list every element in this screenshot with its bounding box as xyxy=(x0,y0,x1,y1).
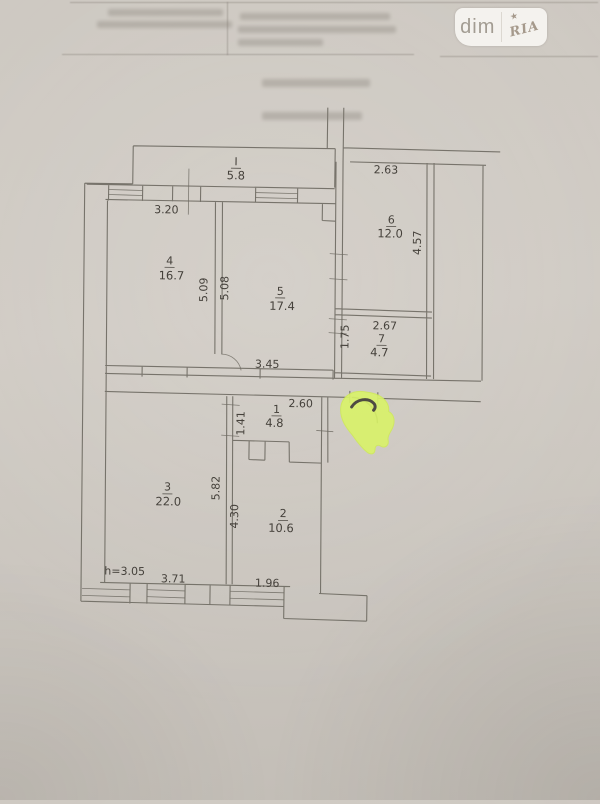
room-3-number: 3 xyxy=(164,480,171,493)
room-4-area: 16.7 xyxy=(159,268,185,282)
blurred-text xyxy=(240,13,390,20)
room-balcony-number: I xyxy=(234,155,237,168)
room-4-number: 4 xyxy=(166,254,173,267)
dim-logo: dim xyxy=(455,16,501,39)
blurred-text xyxy=(97,21,232,28)
plan-walls xyxy=(79,104,501,623)
room-1-number: 1 xyxy=(273,403,280,416)
room-7-area: 4.7 xyxy=(370,345,388,359)
dim-label-4-30: 4.30 xyxy=(228,504,241,529)
dim-label-2-60: 2.60 xyxy=(288,397,313,410)
faint-table-line xyxy=(440,56,598,57)
room-number-underlines xyxy=(161,167,397,522)
dim-label-height: h=3.05 xyxy=(104,564,145,578)
dim-label-2-63: 2.63 xyxy=(374,163,399,176)
faint-table-line xyxy=(70,2,598,3)
dim-label-1-41: 1.41 xyxy=(234,411,247,436)
dim-logo-text: dim xyxy=(460,16,495,38)
room-1-area: 4.8 xyxy=(265,416,283,430)
faint-table-line xyxy=(62,54,414,55)
dim-label-3-20: 3.20 xyxy=(154,203,179,216)
dim-label-4-57: 4.57 xyxy=(411,230,424,255)
blurred-text xyxy=(238,39,323,46)
blurred-text xyxy=(262,79,370,87)
room-2-area: 10.6 xyxy=(268,521,294,535)
dimria-watermark: dim ★ RIA xyxy=(455,8,547,46)
floorplan-drawing: I 5.8 4 16.7 5 17.4 6 12.0 7 4.7 1 4.8 2… xyxy=(0,0,600,800)
room-5-number: 5 xyxy=(277,285,284,298)
dim-label-3-71: 3.71 xyxy=(161,572,186,585)
dim-label-2-67: 2.67 xyxy=(372,319,397,332)
blurred-text xyxy=(238,26,396,33)
dim-label-5-09: 5.09 xyxy=(197,278,210,303)
room-3-area: 22.0 xyxy=(155,494,181,508)
room-2-number: 2 xyxy=(280,507,287,520)
dim-label-1-96: 1.96 xyxy=(255,577,280,590)
faint-table-line xyxy=(227,2,228,55)
room-6-number: 6 xyxy=(388,213,395,226)
ria-logo: ★ RIA xyxy=(502,18,548,37)
room-balcony-area: 5.8 xyxy=(227,168,245,182)
room-6-area: 12.0 xyxy=(377,226,403,240)
dim-label-3-45: 3.45 xyxy=(255,358,280,371)
blurred-text xyxy=(262,112,362,120)
dim-label-5-82: 5.82 xyxy=(209,476,222,501)
dim-label-5-08: 5.08 xyxy=(218,276,231,301)
room-7-number: 7 xyxy=(378,332,385,345)
star-icon: ★ xyxy=(509,11,519,23)
blurred-text xyxy=(108,9,223,16)
floorplan-photo: I 5.8 4 16.7 5 17.4 6 12.0 7 4.7 1 4.8 2… xyxy=(0,0,600,800)
dim-label-1-75: 1.75 xyxy=(338,324,351,349)
room-5-area: 17.4 xyxy=(269,299,295,313)
